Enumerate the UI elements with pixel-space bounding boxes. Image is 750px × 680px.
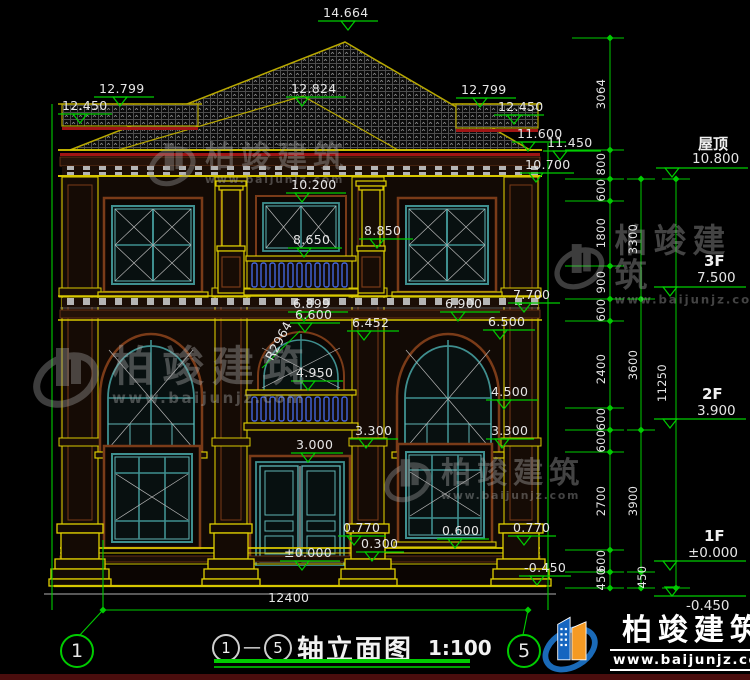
chain-3600: 3600 (626, 343, 640, 387)
dim-0300: 0.300 (361, 537, 398, 551)
dim-span-12400: 12400 (268, 591, 309, 605)
title-axis-to: 5 (264, 634, 292, 662)
dim-12799-left: 12.799 (99, 82, 145, 96)
level-1f-value: ±0.000 (688, 545, 738, 561)
title-dash: — (243, 637, 261, 658)
level-2f-value: 3.900 (697, 403, 736, 419)
title-axis-from: 1 (212, 634, 240, 662)
axis-bubble-5: 5 (507, 634, 541, 668)
dim-4500: 4.500 (491, 385, 528, 399)
level-2f-label: 2F (702, 385, 723, 403)
title-underline-thin (214, 666, 470, 668)
dim-11450: 11.450 (547, 136, 593, 150)
dim-3300-center: 3.300 (355, 424, 392, 438)
dim-10700: 10.700 (525, 158, 571, 172)
level-1f-label: 1F (704, 527, 725, 545)
watermark-name: 柏竣建筑 (441, 457, 585, 489)
chain-2700: 2700 (594, 479, 608, 523)
watermark-name: 柏竣建筑 (112, 345, 312, 389)
watermark-logo-icon (146, 136, 198, 191)
dim-12799-right: 12.799 (461, 83, 507, 97)
dim-12450-right: 12.450 (498, 100, 544, 114)
brand-logo: 柏竣建筑 www.baijunjz.com (540, 612, 750, 674)
chain-3900: 3900 (626, 479, 640, 523)
window-3f-left (98, 198, 208, 297)
dim-neg0450: -0.450 (524, 561, 566, 575)
dim-0770-left: 0.770 (343, 521, 380, 535)
window-3f-right (392, 198, 502, 297)
bottom-border (0, 674, 750, 680)
level-3f-label: 3F (704, 252, 725, 270)
dim-3300-right: 3.300 (491, 424, 528, 438)
dim-8850: 8.850 (364, 224, 401, 238)
watermark-logo-icon (382, 452, 434, 507)
watermark-name: 柏竣建筑 (205, 141, 349, 173)
chain-2400: 2400 (594, 347, 608, 391)
axis-bubble-1: 1 (60, 634, 94, 668)
dim-10200: 10.200 (291, 178, 337, 192)
chain-450b: 450 (635, 555, 649, 599)
dim-zero: ±0.000 (284, 546, 332, 560)
dim-8650: 8.650 (293, 233, 330, 247)
watermark-logo-icon (30, 338, 102, 414)
chain-3064: 3064 (594, 72, 608, 116)
brand-logo-icon (540, 612, 602, 674)
dim-6900: 6.900 (445, 297, 482, 311)
level-3f-value: 7.500 (697, 270, 736, 286)
watermark-url: www.baijunjz.com (112, 389, 312, 407)
dim-6500: 6.500 (488, 315, 525, 329)
watermark-url: www.baijunjz.com (615, 293, 750, 307)
watermark-url: www.baijunjz.com (441, 489, 585, 502)
window-1f-left (104, 446, 200, 548)
chain-3300: 3300 (626, 217, 640, 261)
brand-url: www.baijunjz.com (610, 649, 750, 671)
axis-5-number: 5 (518, 640, 530, 662)
chain-600d: 600 (594, 419, 608, 463)
dim-0600: 0.600 (442, 524, 479, 538)
dim-7700: 7.700 (513, 288, 550, 302)
title-underline (214, 659, 470, 663)
level-roof-value: 10.800 (692, 151, 739, 167)
chain-1800: 1800 (594, 211, 608, 255)
dim-12450-left: 12.450 (62, 99, 108, 113)
dim-3000: 3.000 (296, 438, 333, 452)
brand-name: 柏竣建筑 (622, 615, 750, 647)
dim-12824: 12.824 (291, 82, 337, 96)
dim-0770-right: 0.770 (513, 521, 550, 535)
cad-elevation-screenshot: 柏竣建筑www.baijunjz.com 柏竣建筑www.baijunjz.co… (0, 0, 750, 680)
axis-1-number: 1 (71, 640, 83, 662)
watermark: 柏竣建筑www.baijunjz.com (382, 452, 585, 507)
dim-4950: 4.950 (296, 366, 333, 380)
title-scale: 1:100 (428, 636, 492, 660)
dim-6600: 6.600 (295, 308, 332, 322)
dim-6452: 6.452 (352, 316, 389, 330)
window-3f-center (256, 196, 346, 258)
dim-ridge: 14.664 (323, 6, 369, 20)
chain-total-11250: 11250 (655, 361, 669, 405)
chain-450a: 450 (594, 557, 608, 601)
chain-600a: 600 (594, 168, 608, 212)
chain-600b: 600 (594, 288, 608, 332)
